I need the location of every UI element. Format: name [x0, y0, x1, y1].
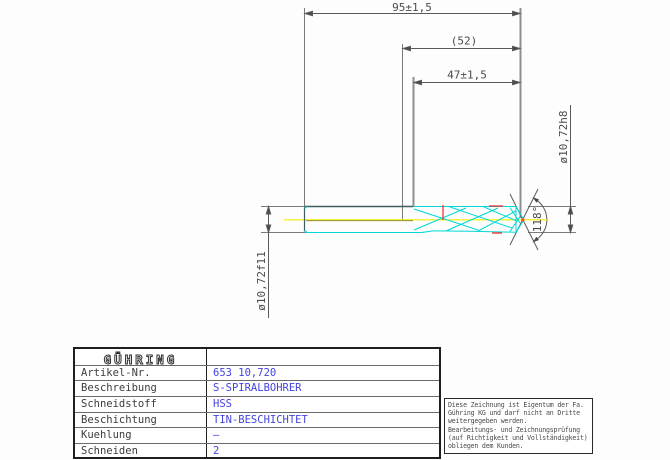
row-label: Schneiden	[75, 444, 207, 459]
row-value: HSS	[207, 397, 439, 412]
disclaimer-box: Diese Zeichnung ist Eigentum der Fa. Güh…	[444, 398, 593, 454]
row-label: Beschreibung	[75, 381, 207, 396]
table-row: Beschreibung S-SPIRALBOHRER	[75, 380, 439, 396]
dim-front-diameter: ø10,72f11	[255, 251, 268, 311]
tip-point	[521, 218, 524, 221]
dim-point-angle: 118°	[531, 206, 544, 233]
disclaimer-line: obliegen dem Kunden.	[448, 442, 589, 450]
table-row: Schneiden 2	[75, 443, 439, 459]
title-block: GÜHRING Artikel-Nr. 653 10,720 Beschreib…	[73, 347, 441, 459]
disclaimer-line: Bearbeitungs- und Zeichnungsprüfung	[448, 426, 589, 434]
table-row: Artikel-Nr. 653 10,720	[75, 365, 439, 381]
row-label: Artikel-Nr.	[75, 366, 207, 381]
row-value: TIN-BESCHICHTET	[207, 413, 439, 428]
disclaimer-line: (auf Richtigkeit und Vollständigkeit)	[448, 434, 589, 442]
row-value: S-SPIRALBOHRER	[207, 381, 439, 396]
row-label: Schneidstoff	[75, 397, 207, 412]
row-value: –	[207, 428, 439, 443]
row-value: 2	[207, 444, 439, 459]
row-label: Kuehlung	[75, 428, 207, 443]
disclaimer-line: Gühring KG und darf nicht an Dritte	[448, 409, 589, 417]
dim-flute-length: 47±1,5	[447, 69, 487, 82]
disclaimer-line: weitergegeben werden.	[448, 417, 589, 425]
table-row: Beschichtung TIN-BESCHICHTET	[75, 412, 439, 428]
disclaimer-line: Diese Zeichnung ist Eigentum der Fa.	[448, 401, 589, 409]
dim-reference-length: (52)	[451, 35, 478, 48]
dim-overall-length: 95±1,5	[392, 1, 432, 14]
logo-row: GÜHRING	[75, 349, 439, 365]
table-row: Schneidstoff HSS	[75, 396, 439, 412]
drill-view	[284, 205, 547, 233]
dim-shank-diameter: ø10,72h8	[557, 111, 570, 164]
row-value: 653 10,720	[207, 366, 439, 381]
extension-lines	[261, 8, 576, 233]
dimension-lines	[266, 11, 572, 318]
table-row: Kuehlung –	[75, 427, 439, 443]
drawing-canvas: 95±1,5 (52) 47±1,5 ø10,72f11 ø10,72h8 11…	[0, 0, 670, 460]
row-label: Beschichtung	[75, 413, 207, 428]
